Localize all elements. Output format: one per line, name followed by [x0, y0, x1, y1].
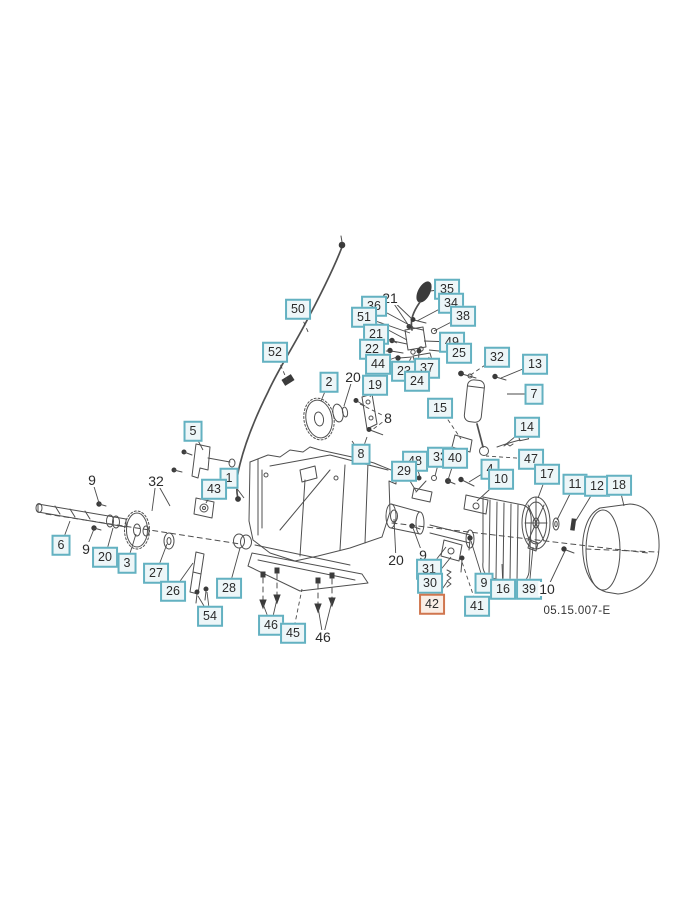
part-label-9: 9 — [81, 542, 91, 556]
part-label-44[interactable]: 44 — [365, 354, 391, 375]
part-label-20: 20 — [387, 553, 405, 567]
part-label-13[interactable]: 13 — [522, 354, 548, 375]
part-label-19[interactable]: 19 — [362, 375, 388, 396]
part-label-3[interactable]: 3 — [118, 553, 137, 574]
part-label-46: 46 — [314, 630, 332, 644]
part-label-17[interactable]: 17 — [534, 464, 560, 485]
part-label-20[interactable]: 20 — [92, 547, 118, 568]
part-label-54[interactable]: 54 — [197, 606, 223, 627]
part-label-7[interactable]: 7 — [525, 384, 544, 405]
part-label-29[interactable]: 29 — [391, 461, 417, 482]
part-label-28[interactable]: 28 — [216, 578, 242, 599]
parts-diagram-page: 5052213651353438492521224423372422019883… — [0, 0, 688, 900]
part-label-18[interactable]: 18 — [606, 475, 632, 496]
part-label-15[interactable]: 15 — [427, 398, 453, 419]
diagram-code: 05.15.007-E — [543, 605, 610, 617]
part-label-5[interactable]: 5 — [184, 421, 203, 442]
part-label-43[interactable]: 43 — [201, 479, 227, 500]
part-label-45[interactable]: 45 — [280, 623, 306, 644]
part-label-38[interactable]: 38 — [450, 306, 476, 327]
part-label-41[interactable]: 41 — [464, 596, 490, 617]
part-label-8: 8 — [383, 411, 393, 425]
part-label-10[interactable]: 10 — [488, 469, 514, 490]
part-label-40[interactable]: 40 — [442, 448, 468, 469]
part-label-6[interactable]: 6 — [52, 535, 71, 556]
part-label-8[interactable]: 8 — [352, 444, 371, 465]
part-label-50[interactable]: 50 — [285, 299, 311, 320]
part-label-16[interactable]: 16 — [490, 579, 516, 600]
part-label-20: 20 — [344, 370, 362, 384]
part-label-42[interactable]: 42 — [419, 594, 445, 615]
part-label-25[interactable]: 25 — [446, 343, 472, 364]
part-label-10: 10 — [538, 582, 556, 596]
part-label-32[interactable]: 32 — [484, 347, 510, 368]
part-label-24[interactable]: 24 — [404, 371, 430, 392]
part-label-52[interactable]: 52 — [262, 342, 288, 363]
part-label-30[interactable]: 30 — [417, 573, 443, 594]
part-label-14[interactable]: 14 — [514, 417, 540, 438]
part-label-9: 9 — [87, 473, 97, 487]
leader-lines-layer — [0, 0, 688, 900]
part-label-32: 32 — [147, 474, 165, 488]
part-label-26[interactable]: 26 — [160, 581, 186, 602]
part-label-2[interactable]: 2 — [320, 372, 339, 393]
